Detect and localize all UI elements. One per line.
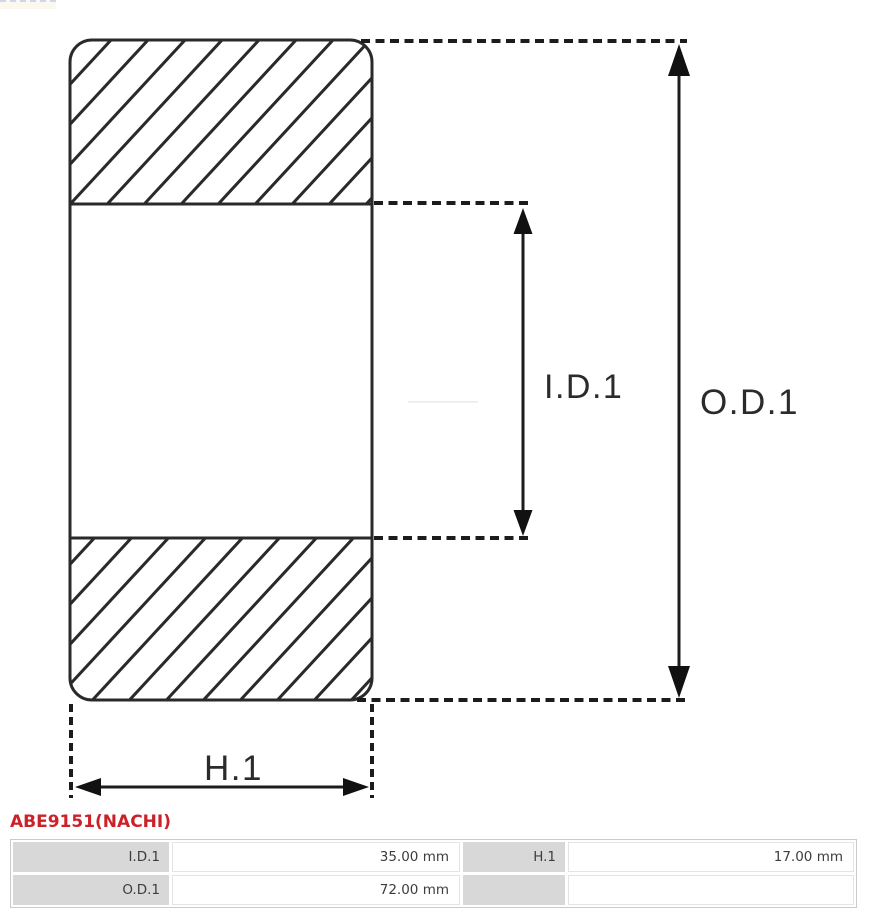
spec-label-id1: I.D.1 — [13, 842, 169, 872]
dimension-spec-table: I.D.1 35.00 mm H.1 17.00 mm O.D.1 72.00 … — [10, 839, 857, 908]
id1-dimension-label: I.D.1 — [544, 368, 623, 406]
product-dimension-page: I.D.1 O.D.1 H.1 ABE9151(NACHI) I.D.1 35.… — [0, 0, 871, 913]
bearing-body — [70, 40, 372, 700]
spec-value-empty — [568, 875, 854, 905]
h1-dimension-label: H.1 — [204, 749, 263, 788]
od1-dimension-arrow — [668, 44, 690, 698]
od1-dimension-label: O.D.1 — [700, 383, 799, 422]
spec-value-od1: 72.00 mm — [172, 875, 460, 905]
bearing-dimension-diagram: I.D.1 O.D.1 H.1 — [0, 0, 871, 810]
spec-label-od1: O.D.1 — [13, 875, 169, 905]
spec-value-id1: 35.00 mm — [172, 842, 460, 872]
spec-value-h1: 17.00 mm — [568, 842, 854, 872]
top-hatch-band — [70, 40, 372, 204]
spec-label-h1: H.1 — [463, 842, 565, 872]
product-code-title: ABE9151(NACHI) — [10, 812, 171, 832]
spec-label-empty — [463, 875, 565, 905]
id1-dimension-arrow — [514, 208, 533, 536]
watermark-line — [408, 401, 478, 403]
bottom-hatch-band — [70, 538, 372, 700]
